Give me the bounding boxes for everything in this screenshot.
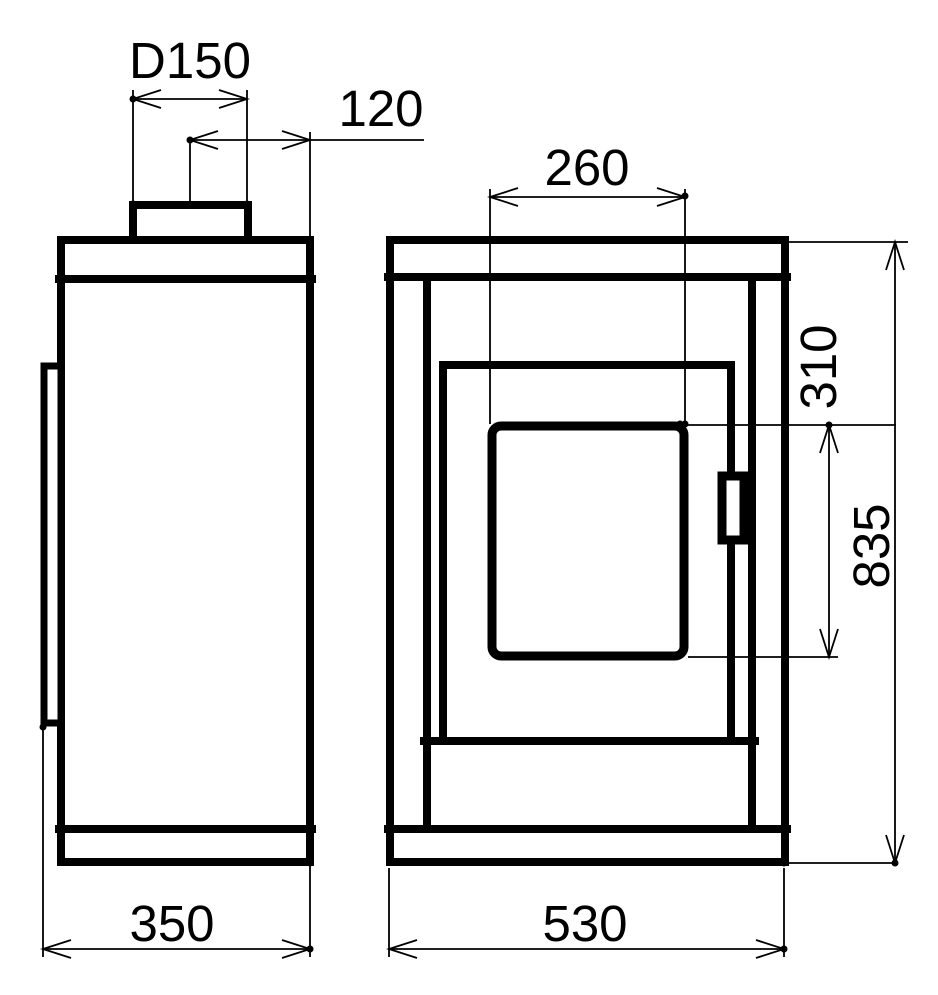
side-view bbox=[44, 205, 312, 862]
dim-label-flue-diameter: D150 bbox=[129, 32, 251, 89]
dim-label-glass-height: 310 bbox=[790, 324, 847, 409]
dim-dot bbox=[307, 238, 314, 245]
dim-dot bbox=[781, 237, 788, 244]
dim-dot bbox=[677, 421, 684, 428]
dim-dot bbox=[826, 422, 833, 429]
dim-label-overall-height: 835 bbox=[843, 503, 900, 588]
door-slab-side bbox=[44, 366, 61, 723]
drawing-canvas: D150 120 260 310 bbox=[0, 0, 938, 995]
dim-dot bbox=[781, 860, 788, 867]
dim-dot bbox=[892, 860, 899, 867]
dim-label-width: 530 bbox=[542, 895, 627, 952]
dim-dot bbox=[187, 137, 194, 144]
dim-label-glass-width: 260 bbox=[544, 139, 629, 196]
dim-label-depth: 350 bbox=[129, 895, 214, 952]
glass-window bbox=[492, 426, 684, 656]
side-body-outline bbox=[61, 240, 310, 862]
flue-collar-side bbox=[133, 205, 248, 240]
dim-dot bbox=[307, 946, 314, 953]
dim-dot bbox=[130, 96, 137, 103]
dim-dot bbox=[682, 193, 689, 200]
technical-drawing-page: D150 120 260 310 bbox=[0, 0, 938, 995]
front-view bbox=[388, 240, 787, 862]
dim-dot bbox=[40, 724, 47, 731]
dim-label-flue-offset: 120 bbox=[338, 80, 423, 137]
dim-dot bbox=[130, 201, 137, 208]
door-handle bbox=[722, 476, 744, 540]
dim-dot bbox=[244, 201, 251, 208]
dim-dot bbox=[307, 860, 314, 867]
dim-dot bbox=[781, 946, 788, 953]
dim-width: 530 bbox=[389, 860, 788, 959]
